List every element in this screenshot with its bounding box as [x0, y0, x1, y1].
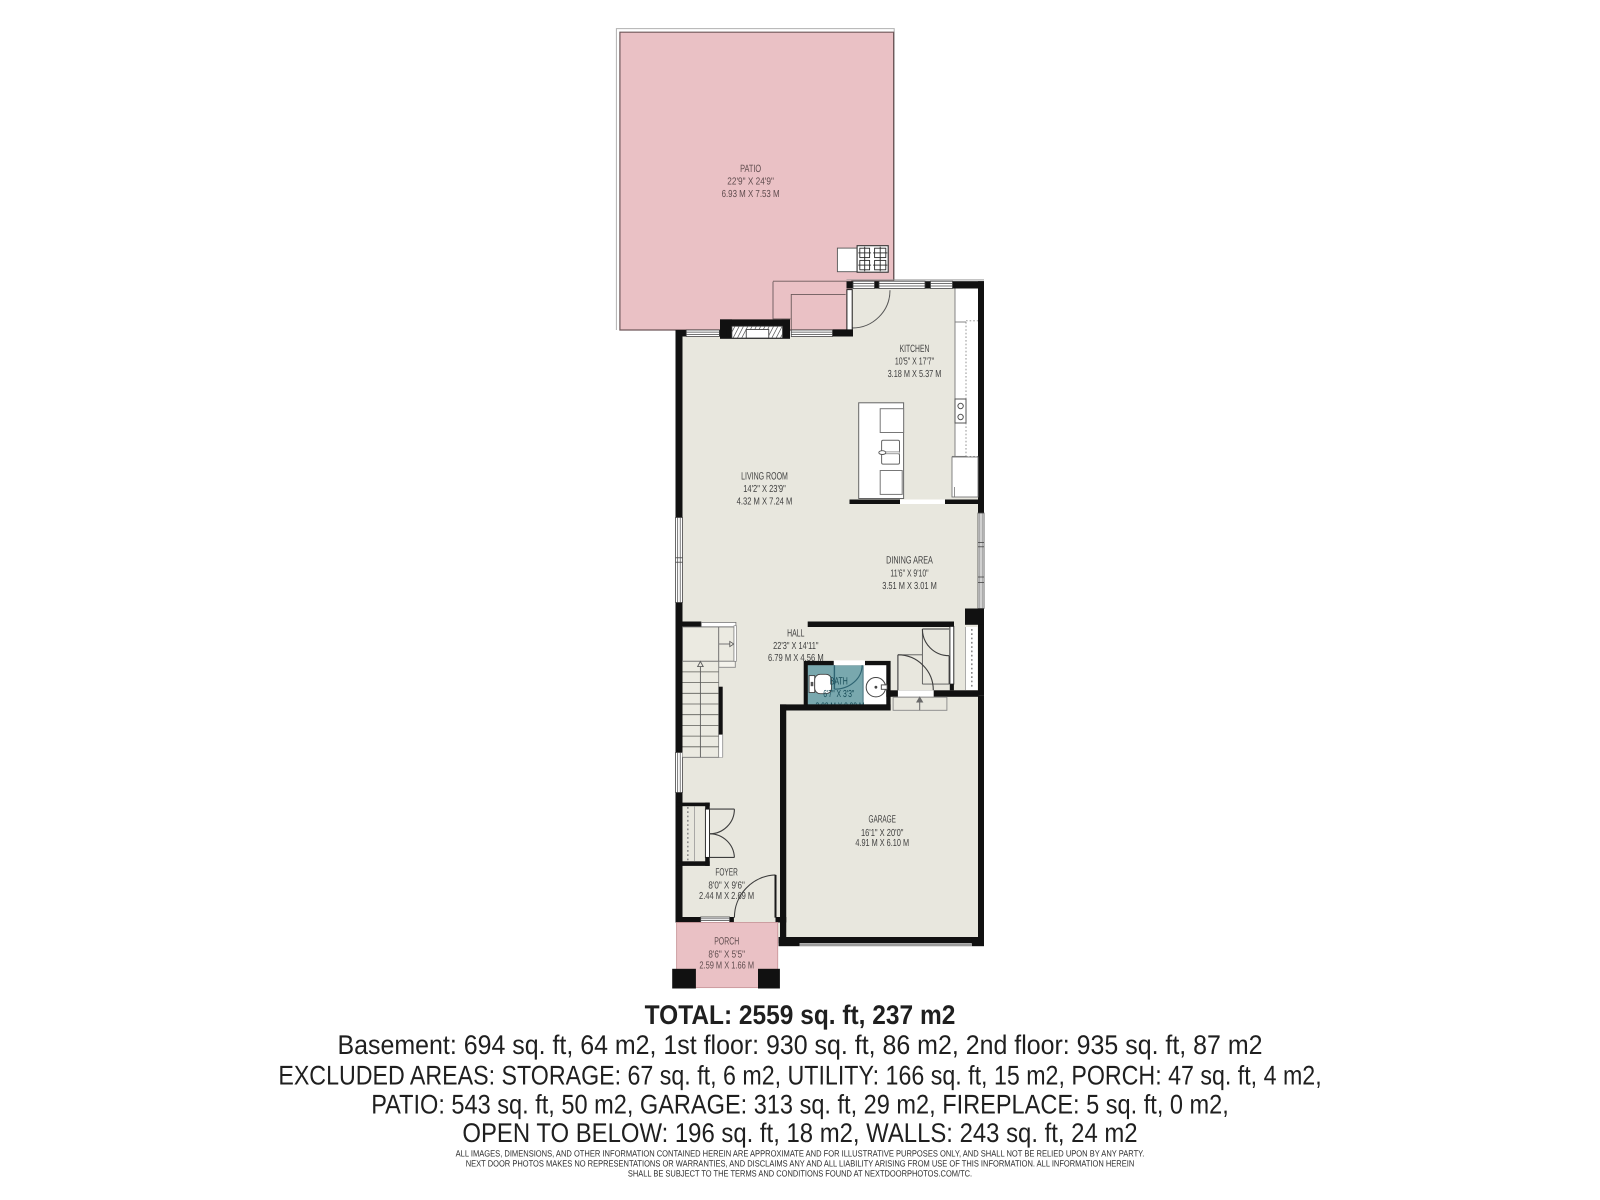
svg-text:PATIO: 543 sq. ft, 50 m2, GARA: PATIO: 543 sq. ft, 50 m2, GARAGE: 313 sq… [371, 1090, 1229, 1120]
svg-text:3.18 M X 5.37 M: 3.18 M X 5.37 M [888, 369, 942, 380]
svg-text:DINING AREA: DINING AREA [886, 555, 933, 567]
svg-text:SHALL BE SUBJECT TO THE TERMS: SHALL BE SUBJECT TO THE TERMS AND CONDIT… [628, 1168, 972, 1178]
svg-text:8'0" X 9'6": 8'0" X 9'6" [708, 880, 745, 891]
svg-text:14'2" X 23'9": 14'2" X 23'9" [743, 484, 786, 495]
svg-text:2.59 M X 1.66 M: 2.59 M X 1.66 M [699, 960, 754, 971]
svg-text:TOTAL: 2559 sq. ft, 237 m2: TOTAL: 2559 sq. ft, 237 m2 [645, 1000, 956, 1030]
svg-text:Basement: 694 sq. ft, 64 m2, 1: Basement: 694 sq. ft, 64 m2, 1st floor: … [338, 1030, 1263, 1060]
svg-text:8'6" X 5'5": 8'6" X 5'5" [708, 949, 745, 960]
svg-text:OPEN TO BELOW: 196 sq. ft, 18: OPEN TO BELOW: 196 sq. ft, 18 m2, WALLS:… [462, 1118, 1137, 1148]
svg-text:GARAGE: GARAGE [868, 814, 896, 826]
svg-text:LIVING ROOM: LIVING ROOM [741, 471, 788, 483]
svg-text:22'9" X 24'9": 22'9" X 24'9" [727, 177, 774, 188]
svg-text:10'5" X 17'7": 10'5" X 17'7" [895, 357, 935, 368]
svg-text:PORCH: PORCH [714, 936, 739, 948]
svg-text:EXCLUDED AREAS: STORAGE: 67 sq: EXCLUDED AREAS: STORAGE: 67 sq. ft, 6 m2… [278, 1061, 1321, 1091]
svg-text:3.51 M X 3.01 M: 3.51 M X 3.01 M [882, 581, 937, 592]
svg-text:4.32 M X 7.24 M: 4.32 M X 7.24 M [737, 496, 793, 507]
svg-text:KITCHEN: KITCHEN [900, 343, 930, 355]
svg-text:ALL IMAGES, DIMENSIONS, AND OT: ALL IMAGES, DIMENSIONS, AND OTHER INFORM… [456, 1149, 1145, 1159]
svg-text:PATIO: PATIO [740, 163, 761, 175]
svg-text:11'6" X 9'10": 11'6" X 9'10" [890, 569, 928, 580]
svg-text:NEXT DOOR PHOTOS MAKES NO REPR: NEXT DOOR PHOTOS MAKES NO REPRESENTATION… [466, 1159, 1135, 1169]
svg-text:FOYER: FOYER [715, 866, 738, 878]
svg-text:6'7" X 3'3": 6'7" X 3'3" [823, 689, 854, 700]
svg-text:2.44 M X 2.69 M: 2.44 M X 2.69 M [699, 891, 754, 902]
svg-text:BATH: BATH [830, 675, 848, 687]
svg-text:22'3" X 14'11": 22'3" X 14'11" [773, 641, 819, 652]
svg-text:HALL: HALL [787, 628, 804, 640]
svg-text:6.93 M X 7.53 M: 6.93 M X 7.53 M [722, 189, 780, 200]
svg-text:4.91 M X 6.10 M: 4.91 M X 6.10 M [855, 838, 909, 849]
